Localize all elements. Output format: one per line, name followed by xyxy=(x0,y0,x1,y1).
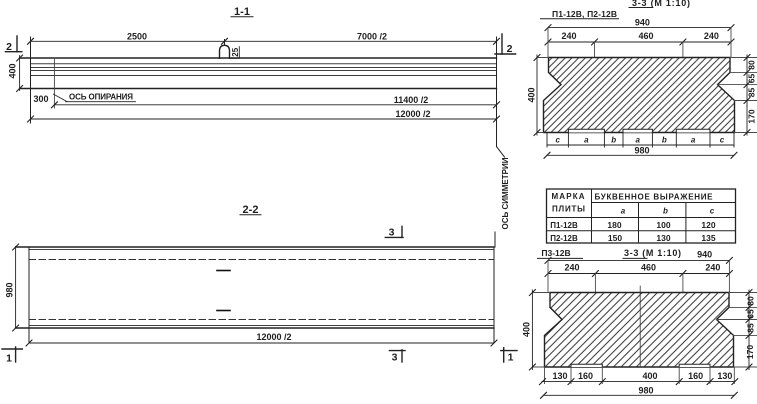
svg-text:120: 120 xyxy=(701,220,715,230)
svg-text:П1-12В: П1-12В xyxy=(550,221,578,230)
svg-text:2500: 2500 xyxy=(127,31,147,41)
svg-text:3: 3 xyxy=(389,227,395,239)
svg-text:2: 2 xyxy=(6,41,12,53)
svg-text:240: 240 xyxy=(561,31,576,41)
svg-text:130: 130 xyxy=(656,233,670,243)
svg-text:12000 /2: 12000 /2 xyxy=(395,109,430,119)
svg-text:130: 130 xyxy=(552,371,567,381)
svg-text:П2-12В: П2-12В xyxy=(550,234,578,243)
svg-text:100: 100 xyxy=(656,220,670,230)
svg-text:11400 /2: 11400 /2 xyxy=(394,95,429,105)
svg-text:240: 240 xyxy=(704,31,719,41)
svg-text:12000 /2: 12000 /2 xyxy=(256,332,291,342)
svg-text:65: 65 xyxy=(746,309,756,319)
svg-text:135: 135 xyxy=(701,233,715,243)
svg-text:460: 460 xyxy=(638,31,653,41)
svg-text:130: 130 xyxy=(717,371,732,381)
svg-text:7000 /2: 7000 /2 xyxy=(357,31,387,41)
svg-text:400: 400 xyxy=(8,63,18,78)
svg-text:300: 300 xyxy=(33,94,48,104)
svg-text:80: 80 xyxy=(747,60,757,70)
svg-text:a: a xyxy=(691,136,696,145)
svg-text:a: a xyxy=(635,136,640,145)
svg-text:85: 85 xyxy=(746,323,756,333)
svg-text:25: 25 xyxy=(231,47,240,56)
svg-text:940: 940 xyxy=(697,250,712,260)
svg-text:160: 160 xyxy=(688,371,703,381)
svg-text:65: 65 xyxy=(747,74,757,84)
svg-text:460: 460 xyxy=(641,262,656,272)
svg-text:2-2: 2-2 xyxy=(243,204,259,216)
svg-text:a: a xyxy=(584,136,589,145)
svg-text:85: 85 xyxy=(747,88,757,98)
svg-text:160: 160 xyxy=(578,371,593,381)
svg-text:c: c xyxy=(710,207,715,216)
svg-text:240: 240 xyxy=(564,262,579,272)
svg-text:170: 170 xyxy=(745,345,755,359)
svg-text:b: b xyxy=(611,136,616,145)
svg-text:a: a xyxy=(621,207,626,216)
svg-text:400: 400 xyxy=(522,322,532,337)
svg-text:150: 150 xyxy=(608,233,622,243)
svg-text:940: 940 xyxy=(635,18,650,28)
svg-text:3: 3 xyxy=(392,352,398,364)
svg-text:c: c xyxy=(720,136,725,145)
svg-text:3-3 (М 1:10): 3-3 (М 1:10) xyxy=(624,248,681,258)
svg-text:ПЛИТЫ: ПЛИТЫ xyxy=(552,205,585,214)
svg-text:b: b xyxy=(663,207,668,216)
svg-text:170: 170 xyxy=(747,109,757,123)
svg-text:c: c xyxy=(555,136,560,145)
svg-text:400: 400 xyxy=(642,371,657,381)
svg-text:80: 80 xyxy=(746,296,756,306)
svg-text:П1-12В, П2-12В: П1-12В, П2-12В xyxy=(552,9,617,19)
svg-text:980: 980 xyxy=(634,146,649,156)
svg-text:ОСЬ ОПИРАНИЯ: ОСЬ ОПИРАНИЯ xyxy=(69,93,133,102)
svg-text:ОСЬ СИММЕТРИИ: ОСЬ СИММЕТРИИ xyxy=(501,157,510,229)
svg-text:980: 980 xyxy=(638,385,653,395)
svg-text:БУКВЕННОЕ ВЫРАЖЕНИЕ: БУКВЕННОЕ ВЫРАЖЕНИЕ xyxy=(595,193,714,202)
svg-text:b: b xyxy=(662,136,667,145)
svg-text:МАРКА: МАРКА xyxy=(552,192,585,201)
svg-text:180: 180 xyxy=(607,220,621,230)
svg-text:П3-12В: П3-12В xyxy=(541,248,570,258)
svg-text:1: 1 xyxy=(508,352,514,364)
svg-text:3-3 (М 1:10): 3-3 (М 1:10) xyxy=(632,0,690,8)
svg-text:1: 1 xyxy=(6,353,12,365)
svg-text:2: 2 xyxy=(507,43,513,55)
svg-text:980: 980 xyxy=(5,282,15,297)
svg-text:240: 240 xyxy=(705,262,720,272)
svg-text:1-1: 1-1 xyxy=(234,6,250,18)
svg-text:400: 400 xyxy=(527,87,537,102)
